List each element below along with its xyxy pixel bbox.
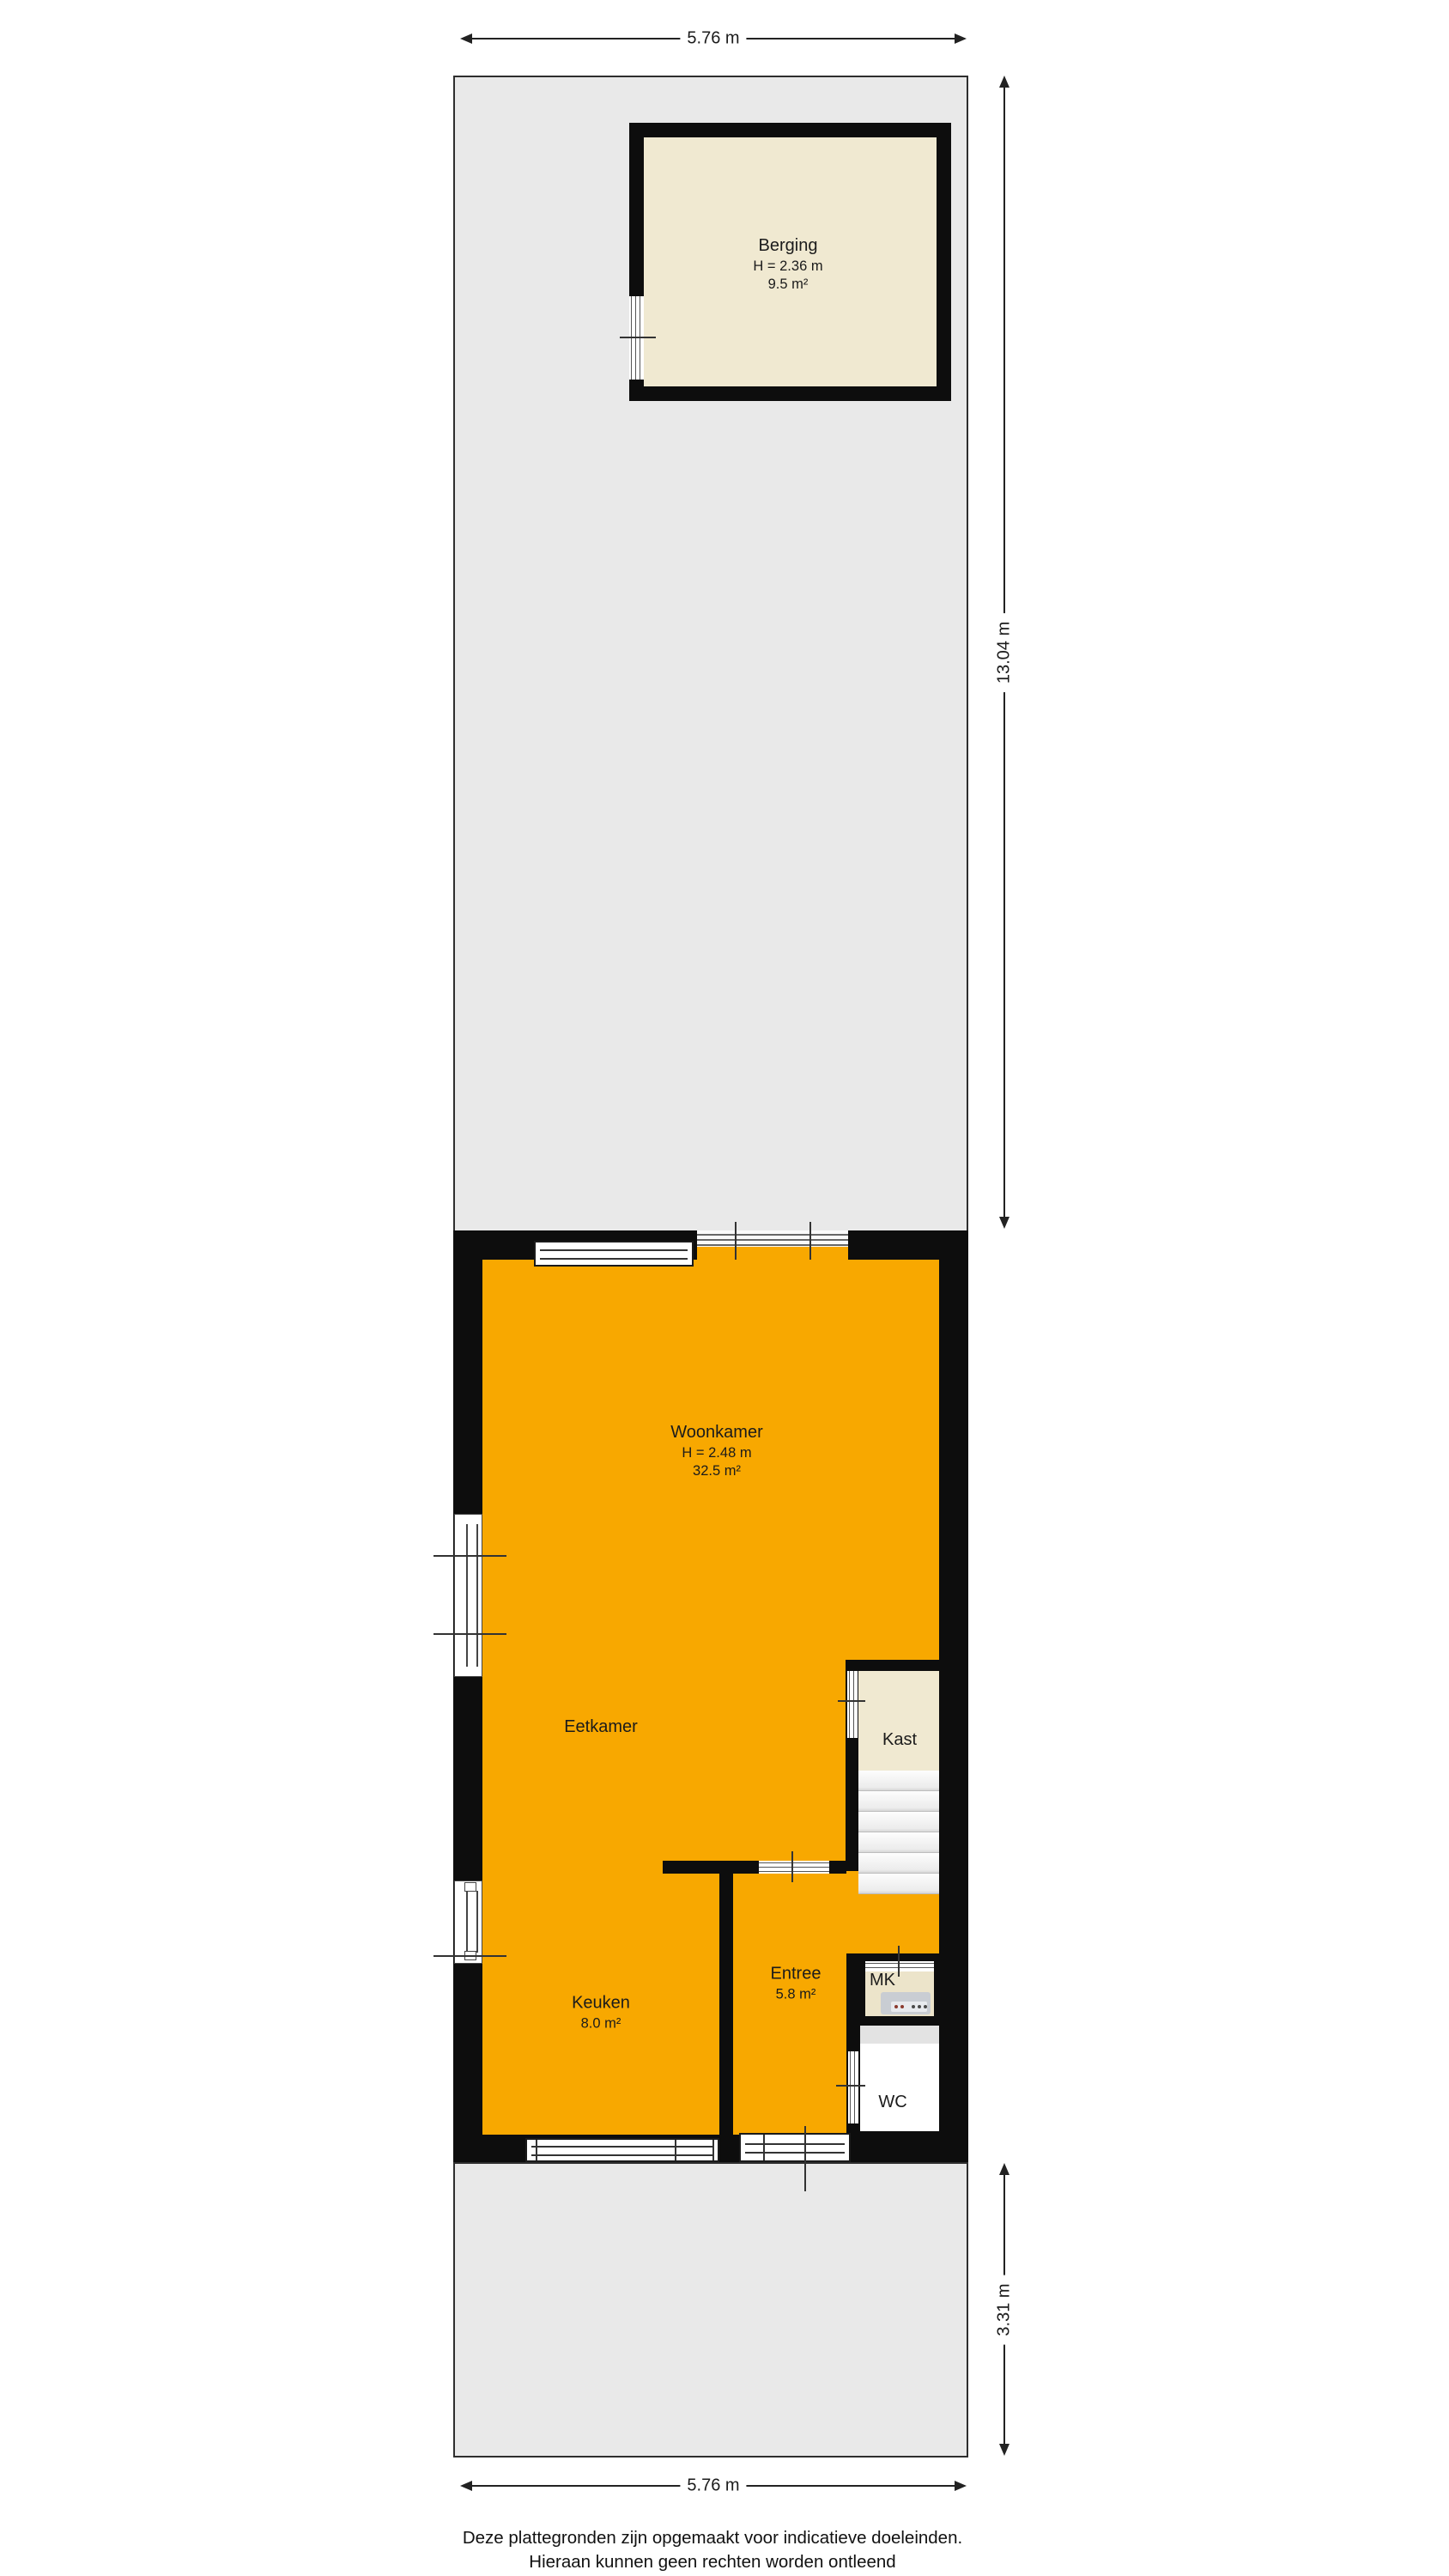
woonkamer-window-icon [534, 1241, 694, 1267]
dim-bottom-label: 5.76 m [680, 2476, 746, 2496]
stair-tread [858, 1812, 939, 1832]
kast-door-icon [847, 1671, 858, 1738]
arrowhead [999, 1217, 1009, 1229]
disclaimer-line-1: Deze plattegronden zijn opgemaakt voor i… [463, 2528, 962, 2549]
eetkamer-window-tick [433, 1633, 506, 1635]
kast-top-wall [846, 1660, 940, 1671]
woonkamer-name: Woonkamer [670, 1422, 762, 1444]
mk-name: MK [870, 1970, 895, 1992]
front-door-tick [804, 2126, 806, 2191]
wc-floor [860, 2044, 939, 2131]
hall-wall-right [829, 1861, 846, 1874]
arrowhead [955, 33, 967, 44]
kast-floor [858, 1671, 939, 1771]
eetkamer-window-tick [433, 1555, 506, 1557]
kast-label: Kast [882, 1729, 917, 1752]
woonkamer-height: H = 2.48 m [670, 1444, 762, 1462]
dim-back-garden-label: 13.04 m [995, 613, 1015, 692]
wc-door-icon [848, 2051, 858, 2123]
wc-fixture [860, 2026, 939, 2044]
entree-name: Entree [771, 1964, 822, 1986]
stair-tread [858, 1832, 939, 1853]
woonkamer-label: Woonkamer H = 2.48 m 32.5 m² [670, 1422, 762, 1480]
hall-door-icon [759, 1861, 829, 1874]
keuken-side-window-tick [433, 1955, 506, 1957]
keuken-window-divider [536, 2140, 537, 2160]
stair-tread [858, 1874, 939, 1894]
entree-area: 5.8 m² [771, 1985, 822, 2003]
floorplan-canvas: Berging H = 2.36 m 9.5 m² Kast [0, 0, 1449, 2576]
kast-door-tick [838, 1700, 865, 1702]
keuken-window-icon [525, 2138, 719, 2162]
eetkamer-window-mullion [466, 1524, 478, 1667]
sliding-door-rail [697, 1244, 848, 1246]
stair-tread [858, 1791, 939, 1812]
kast-name: Kast [882, 1729, 917, 1752]
woonkamer-area: 32.5 m² [670, 1462, 762, 1480]
arrowhead [999, 2444, 1009, 2456]
dim-top-label: 5.76 m [680, 29, 746, 49]
front-door-icon [739, 2133, 851, 2162]
arrowhead [460, 2481, 472, 2491]
berging-door-tick [620, 337, 656, 338]
disclaimer-line-2: Hieraan kunnen geen rechten worden ontle… [529, 2552, 895, 2573]
keuken-window-divider [712, 2140, 714, 2160]
eetkamer-label: Eetkamer [564, 1716, 638, 1739]
window-cap [464, 1882, 476, 1892]
sliding-door-floor [697, 1247, 848, 1260]
staircase [858, 1771, 939, 1894]
front-door-divider [763, 2135, 765, 2160]
keuken-name: Keuken [572, 1993, 630, 2015]
wc-door-tick [836, 2085, 865, 2087]
berging-name: Berging [753, 235, 822, 258]
keuken-area: 8.0 m² [572, 2014, 630, 2032]
mk-label: MK [870, 1970, 895, 1992]
berging-height: H = 2.36 m [753, 258, 822, 276]
berging-area: 9.5 m² [753, 276, 822, 294]
keuken-label: Keuken 8.0 m² [572, 1993, 630, 2033]
berging-label: Berging H = 2.36 m 9.5 m² [753, 235, 822, 294]
stair-tread [858, 1771, 939, 1791]
sliding-door-tick [809, 1222, 811, 1260]
sliding-door-rail [697, 1239, 848, 1241]
stair-tread [858, 1853, 939, 1874]
wc-label: WC [878, 2092, 906, 2114]
arrowhead [955, 2481, 967, 2491]
arrowhead [999, 76, 1009, 88]
arrowhead [999, 2163, 1009, 2175]
sliding-door-rail [697, 1234, 848, 1236]
arrowhead [460, 33, 472, 44]
mk-appliance-icon [881, 1992, 931, 2014]
eetkamer-name: Eetkamer [564, 1716, 638, 1739]
hall-wall-left [663, 1861, 759, 1874]
keuken-entree-wall [719, 1861, 733, 2135]
keuken-side-window-mullion [466, 1891, 478, 1953]
sliding-door-tick [735, 1222, 737, 1260]
mk-door-tick [898, 1946, 900, 1977]
front-garden [453, 2162, 968, 2458]
wc-name: WC [878, 2092, 906, 2114]
keuken-window-divider [675, 2140, 676, 2160]
hall-door-tick [791, 1851, 793, 1882]
entree-label: Entree 5.8 m² [771, 1964, 822, 2004]
dim-front-garden-label: 3.31 m [995, 2275, 1015, 2344]
